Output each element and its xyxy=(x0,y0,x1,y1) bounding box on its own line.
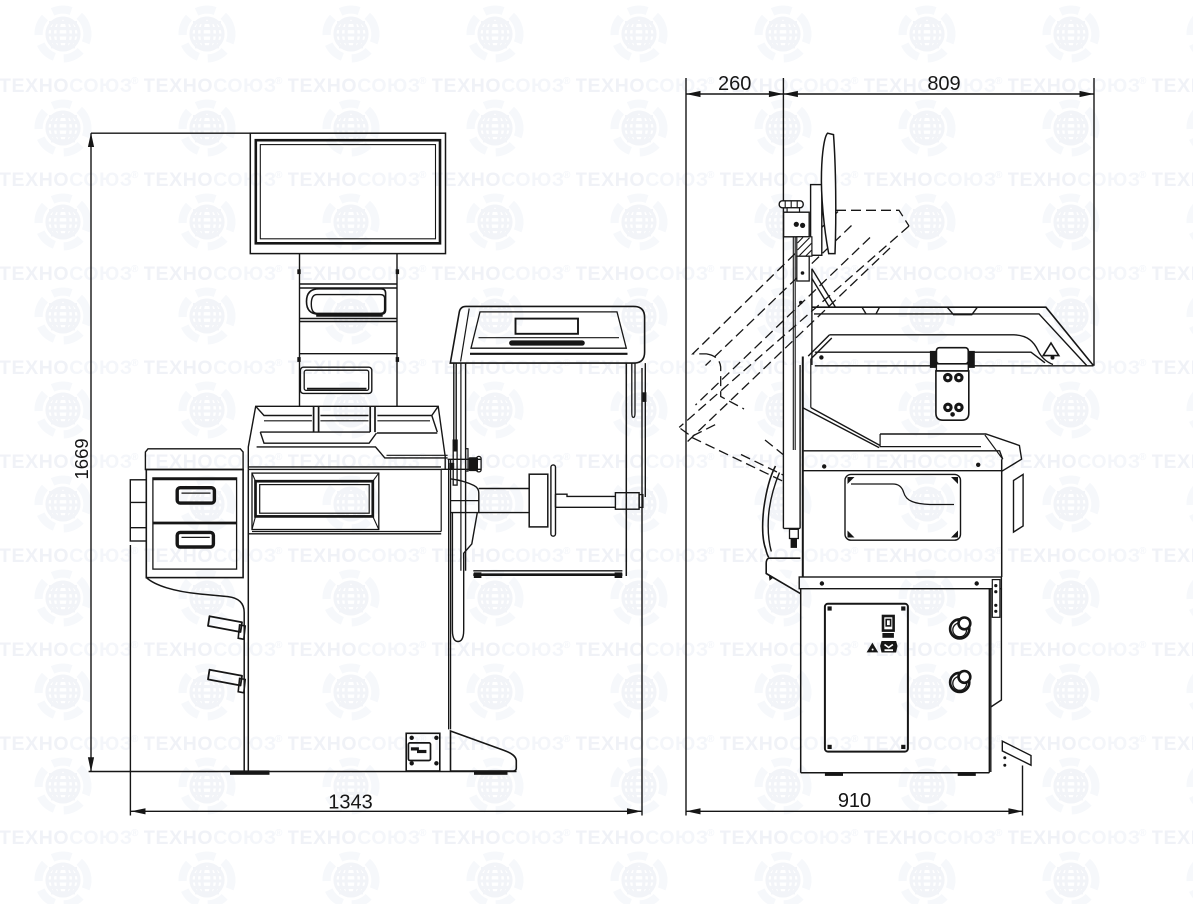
svg-text:910: 910 xyxy=(838,790,871,812)
svg-text:1669: 1669 xyxy=(71,438,92,479)
svg-text:260: 260 xyxy=(718,73,751,95)
svg-text:1343: 1343 xyxy=(328,792,373,814)
svg-text:809: 809 xyxy=(927,73,960,95)
